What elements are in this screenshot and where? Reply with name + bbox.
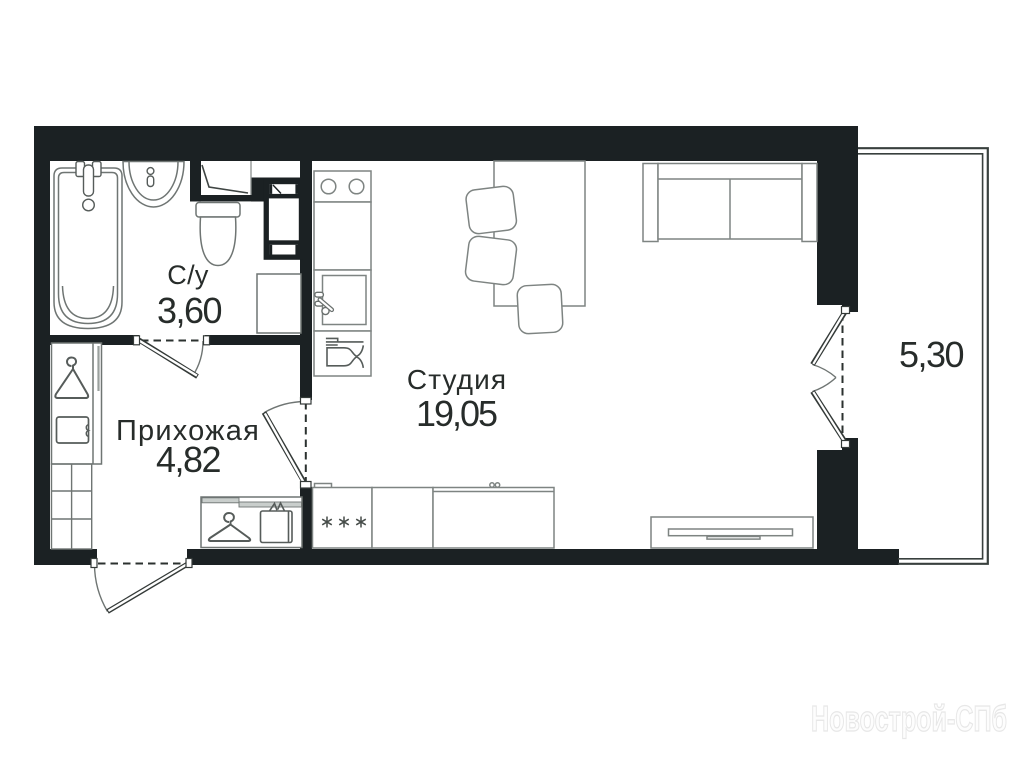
svg-text:4,82: 4,82 bbox=[156, 439, 221, 480]
svg-text:Студия: Студия bbox=[407, 364, 507, 395]
svg-text:С/у: С/у bbox=[167, 260, 209, 290]
svg-text:5,30: 5,30 bbox=[899, 334, 964, 375]
svg-text:19,05: 19,05 bbox=[416, 393, 497, 434]
svg-text:3,60: 3,60 bbox=[157, 290, 222, 331]
svg-text:Новострой-СПб: Новострой-СПб bbox=[811, 698, 1007, 739]
